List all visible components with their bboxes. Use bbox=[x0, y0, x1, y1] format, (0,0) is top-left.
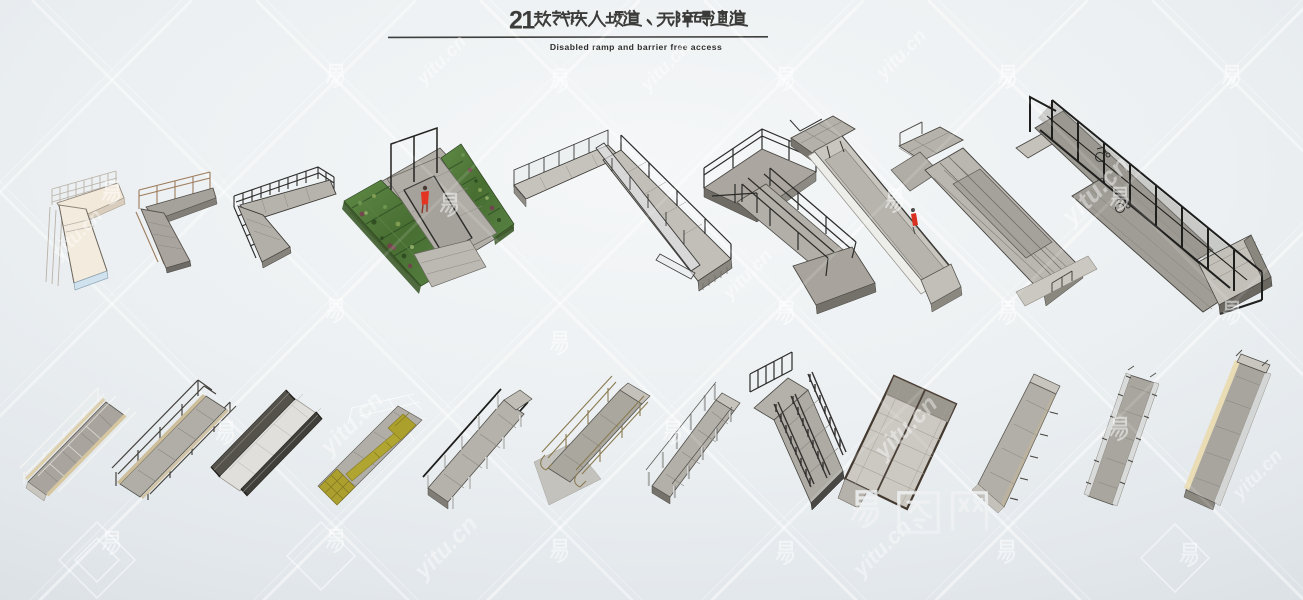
svg-text:21: 21 bbox=[509, 7, 535, 35]
svg-text:Disabled ramp and barrier free: Disabled ramp and barrier free access bbox=[550, 42, 722, 52]
